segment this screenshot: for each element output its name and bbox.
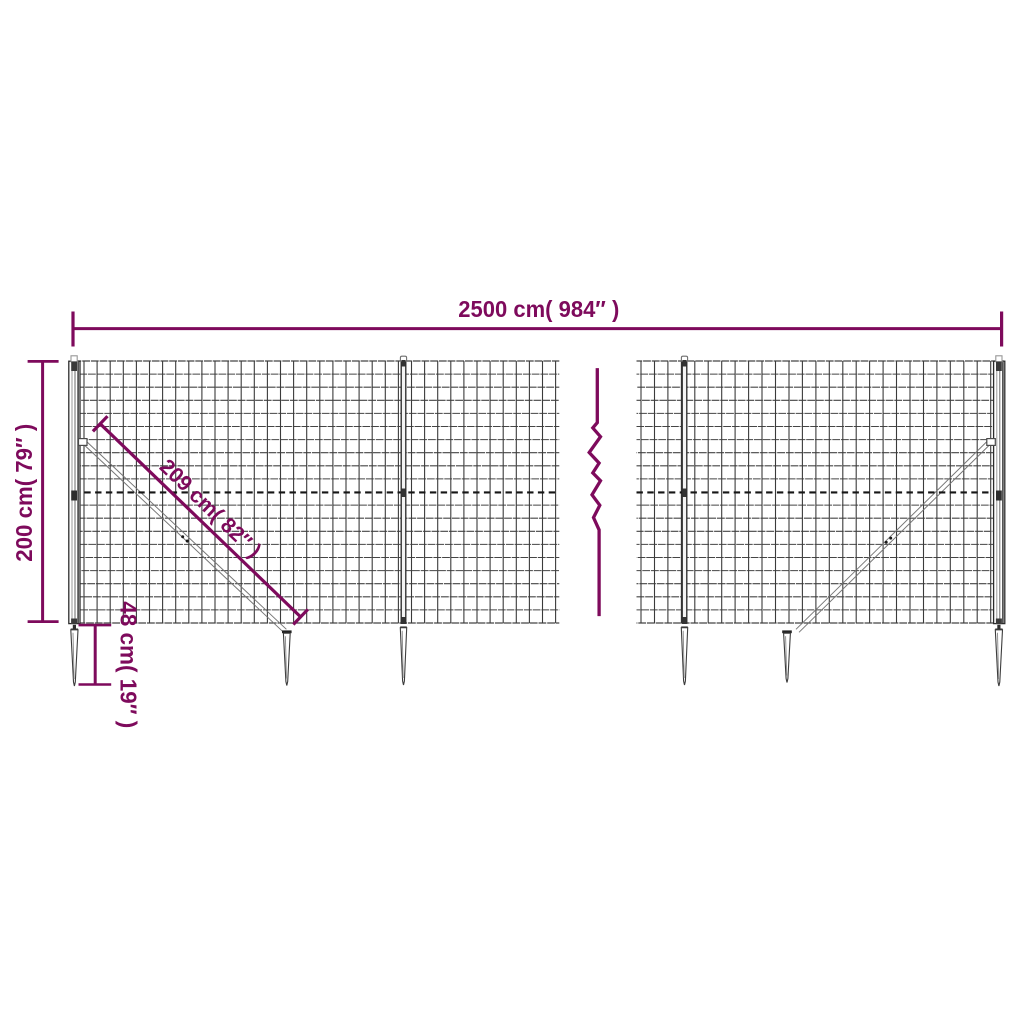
svg-text:2500 cm( 984″ ): 2500 cm( 984″ ) bbox=[458, 296, 619, 322]
svg-text:200 cm( 79″ ): 200 cm( 79″ ) bbox=[11, 424, 37, 562]
svg-text:48 cm( 19″ ): 48 cm( 19″ ) bbox=[116, 601, 142, 728]
